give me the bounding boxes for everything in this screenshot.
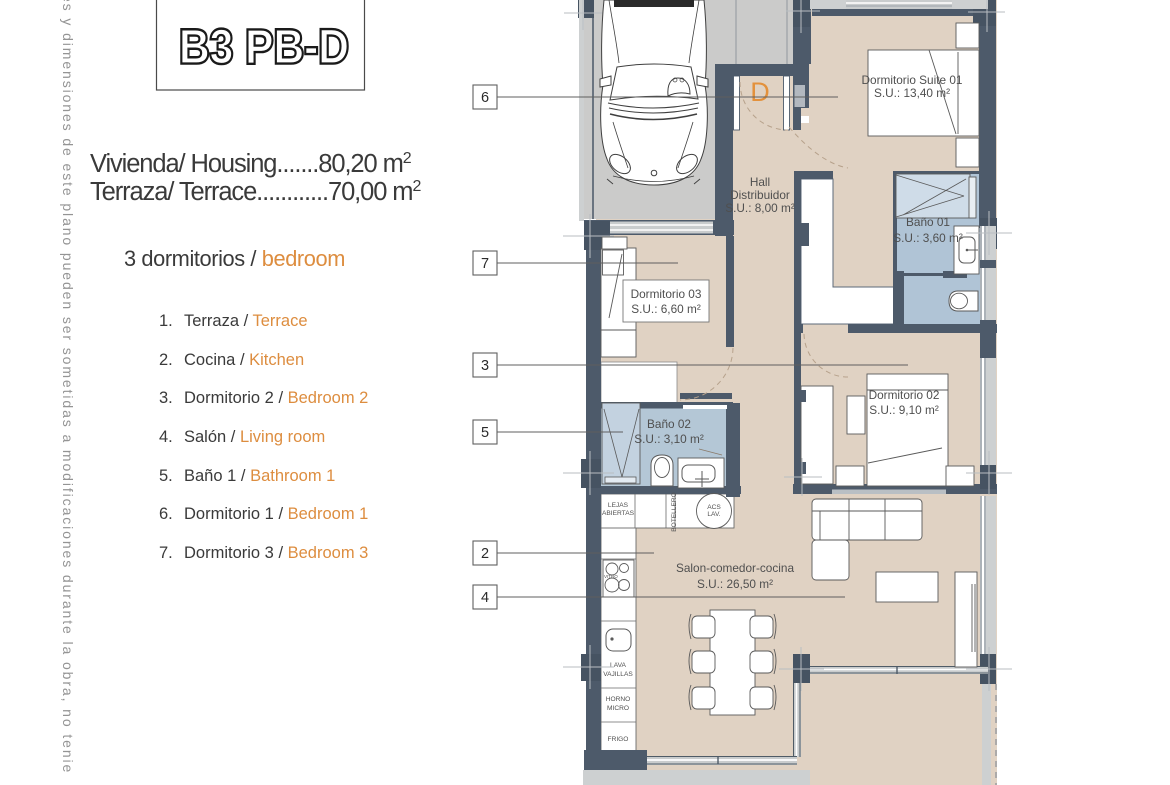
svg-text:ACS: ACS bbox=[707, 504, 721, 511]
svg-text:Terraza/ Terrace............70: Terraza/ Terrace............70,00 m2 bbox=[90, 178, 421, 206]
svg-text:4.Salón / Living room: 4.Salón / Living room bbox=[159, 428, 325, 446]
svg-text:S.U.: 9,10 m²: S.U.: 9,10 m² bbox=[869, 403, 939, 417]
svg-text:Baño 02: Baño 02 bbox=[647, 417, 691, 431]
svg-text:3: 3 bbox=[481, 358, 489, 374]
svg-text:MICRO: MICRO bbox=[607, 705, 629, 712]
svg-text:S.U.: 6,60 m²: S.U.: 6,60 m² bbox=[631, 302, 701, 316]
svg-text:Vivienda/ Housing.......80,20: Vivienda/ Housing.......80,20 m2 bbox=[90, 150, 412, 178]
svg-text:Dormitorio Suite 01: Dormitorio Suite 01 bbox=[862, 73, 963, 87]
svg-text:B3 PB-D: B3 PB-D bbox=[179, 21, 349, 74]
svg-text:LEJAS: LEJAS bbox=[608, 502, 629, 509]
svg-text:Distribuidor: Distribuidor bbox=[730, 188, 790, 202]
svg-text:D: D bbox=[750, 77, 770, 107]
svg-text:S.U.: 13,40 m²: S.U.: 13,40 m² bbox=[874, 86, 950, 100]
svg-text:FRIGO: FRIGO bbox=[608, 736, 629, 743]
svg-text:3.Dormitorio 2 / Bedroom 2: 3.Dormitorio 2 / Bedroom 2 bbox=[159, 389, 368, 407]
svg-text:S.U.: 8,00 m²: S.U.: 8,00 m² bbox=[725, 201, 795, 215]
svg-text:Dormitorio 02: Dormitorio 02 bbox=[869, 388, 940, 402]
svg-text:2: 2 bbox=[481, 546, 489, 562]
svg-text:VITRO: VITRO bbox=[604, 574, 618, 579]
svg-text:Dormitorio 03: Dormitorio 03 bbox=[631, 287, 702, 301]
svg-text:S.U.: 26,50 m²: S.U.: 26,50 m² bbox=[697, 577, 773, 591]
svg-text:3 dormitorios / bedroom: 3 dormitorios / bedroom bbox=[124, 246, 345, 271]
svg-text:7.Dormitorio 3 / Bedroom 3: 7.Dormitorio 3 / Bedroom 3 bbox=[159, 544, 368, 562]
svg-text:VAJILLAS: VAJILLAS bbox=[603, 671, 633, 678]
svg-text:5: 5 bbox=[481, 425, 489, 441]
svg-text:6: 6 bbox=[481, 90, 489, 106]
svg-text:HORNO: HORNO bbox=[606, 696, 631, 703]
svg-text:7: 7 bbox=[481, 256, 489, 272]
svg-text:ABIERTAS: ABIERTAS bbox=[602, 510, 635, 517]
svg-text:Salon-comedor-cocina: Salon-comedor-cocina bbox=[676, 561, 794, 575]
svg-text:Baño 01: Baño 01 bbox=[906, 215, 950, 229]
svg-text:LAVA: LAVA bbox=[610, 662, 626, 669]
svg-text:6.Dormitorio 1 / Bedroom 1: 6.Dormitorio 1 / Bedroom 1 bbox=[159, 505, 368, 523]
svg-text:S.U.: 3,60 m²: S.U.: 3,60 m² bbox=[893, 231, 963, 245]
svg-text:LAV.: LAV. bbox=[707, 511, 720, 518]
svg-text:4: 4 bbox=[481, 590, 489, 606]
svg-text:5.Baño 1 / Bathroom 1: 5.Baño 1 / Bathroom 1 bbox=[159, 467, 335, 485]
svg-text:BOTELLERO: BOTELLERO bbox=[671, 492, 678, 532]
svg-text:S.U.: 3,10 m²: S.U.: 3,10 m² bbox=[634, 432, 704, 446]
svg-text:es y dimensiones de este plano: es y dimensiones de este plano pueden se… bbox=[60, 0, 76, 774]
svg-text:Hall: Hall bbox=[750, 175, 770, 189]
